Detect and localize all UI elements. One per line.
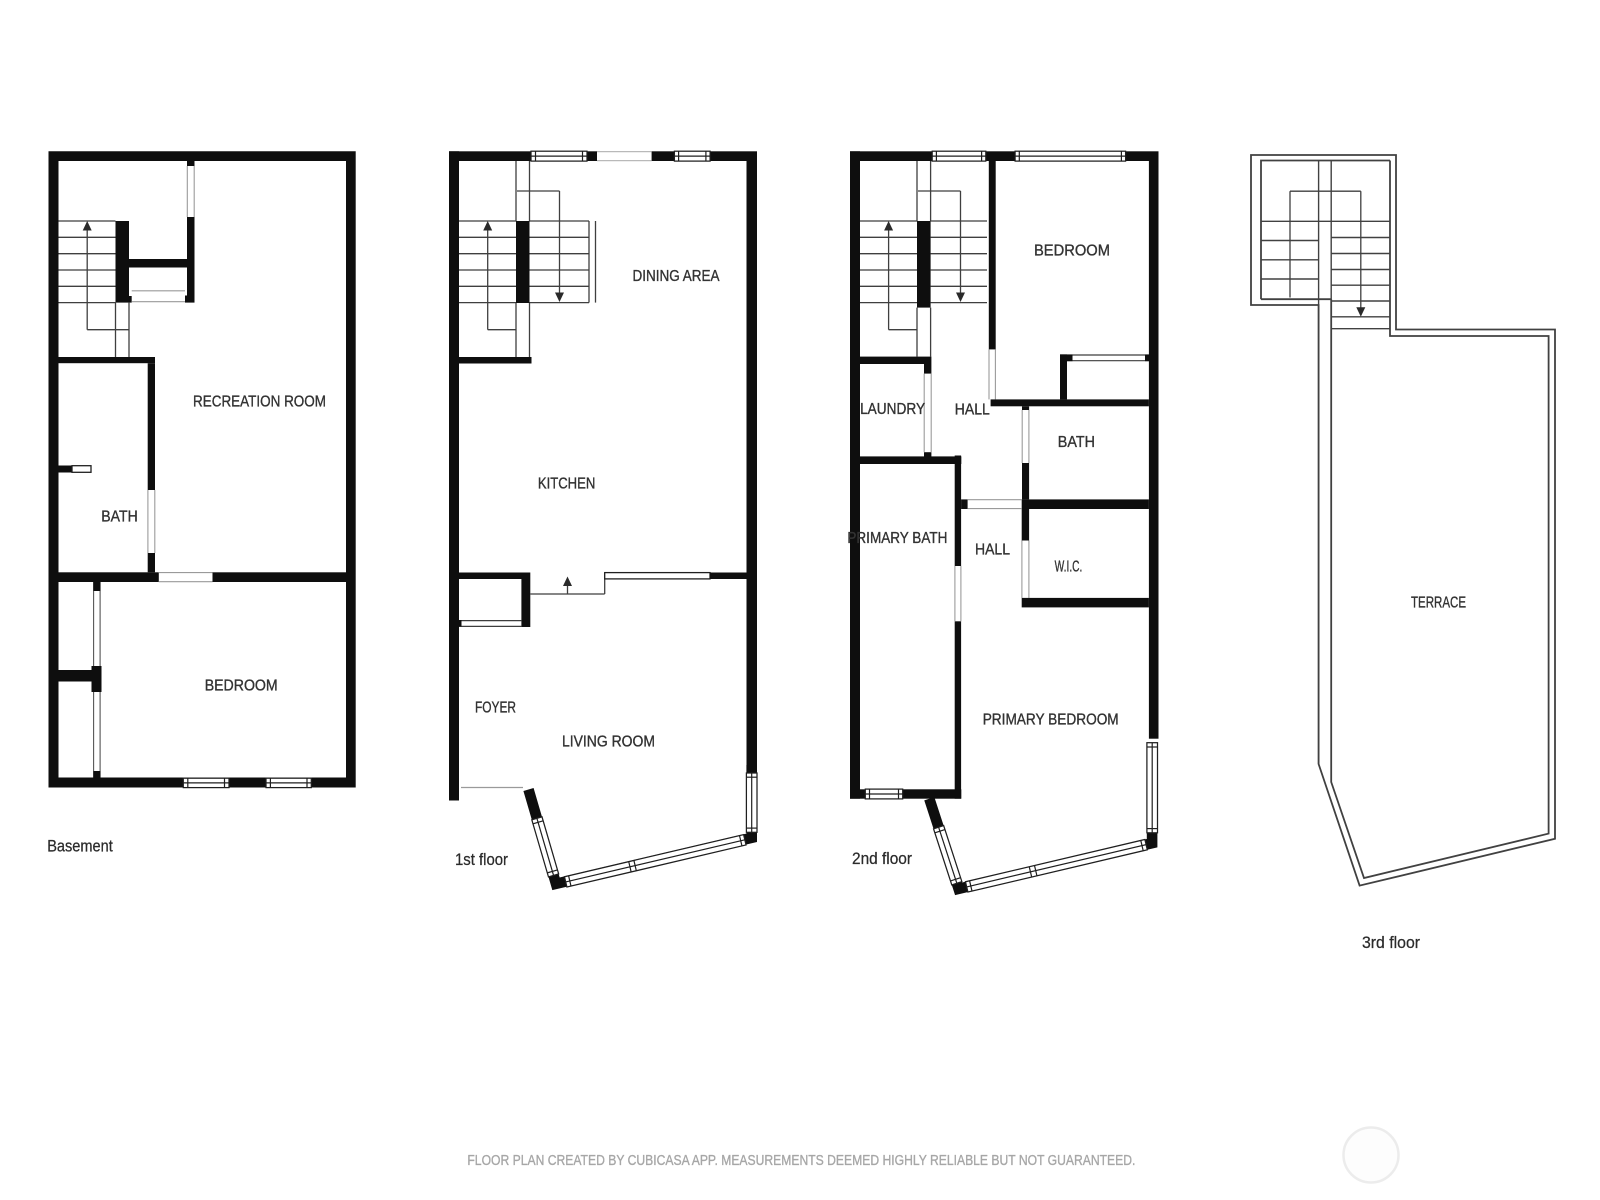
svg-text:1st floor: 1st floor [455, 851, 508, 869]
svg-text:FLOOR PLAN CREATED BY CUBICASA: FLOOR PLAN CREATED BY CUBICASA APP. MEAS… [467, 1152, 1135, 1169]
svg-text:LIVING ROOM: LIVING ROOM [562, 733, 655, 750]
svg-text:BEDROOM: BEDROOM [1034, 242, 1110, 259]
svg-text:HALL: HALL [955, 401, 990, 418]
svg-text:RECREATION ROOM: RECREATION ROOM [193, 393, 326, 410]
svg-text:W.I.C.: W.I.C. [1055, 559, 1083, 576]
svg-text:BATH: BATH [1058, 434, 1095, 451]
svg-text:Basement: Basement [47, 838, 113, 856]
svg-text:DINING AREA: DINING AREA [633, 268, 721, 285]
svg-text:LAUNDRY: LAUNDRY [860, 401, 925, 418]
svg-text:KITCHEN: KITCHEN [538, 476, 596, 493]
svg-text:FOYER: FOYER [475, 699, 516, 716]
svg-text:2nd floor: 2nd floor [852, 850, 912, 868]
svg-text:BATH: BATH [101, 509, 138, 526]
svg-text:PRIMARY BEDROOM: PRIMARY BEDROOM [983, 712, 1119, 729]
svg-text:BEDROOM: BEDROOM [205, 677, 278, 694]
svg-text:HALL: HALL [975, 542, 1010, 559]
svg-text:TERRACE: TERRACE [1411, 594, 1466, 611]
svg-text:3rd floor: 3rd floor [1362, 934, 1420, 952]
svg-text:PRIMARY BATH: PRIMARY BATH [847, 530, 947, 547]
